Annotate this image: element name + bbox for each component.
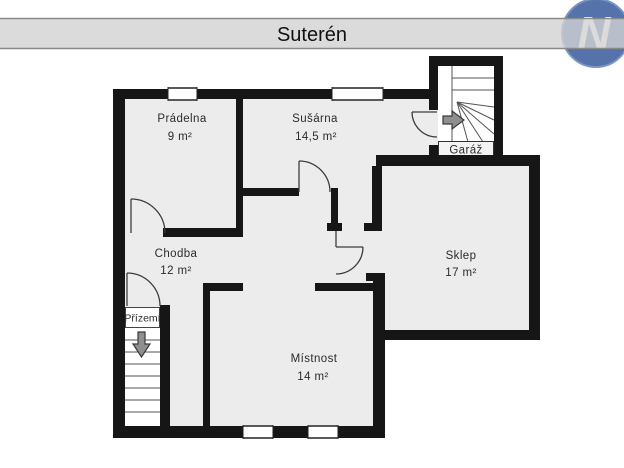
- room-label-garaz: Garáž: [449, 145, 482, 157]
- room-area-sklep: 17 m²: [445, 267, 476, 279]
- staircase-to-ground-floor: [125, 307, 160, 426]
- wall-pradelna-bottom: [163, 228, 243, 237]
- staircase-to-garage: [438, 66, 494, 157]
- window-mistnost-left: [243, 425, 273, 439]
- room-label-prizemi: Přízemí: [124, 313, 160, 325]
- wall-stairbox-right: [494, 56, 503, 166]
- wall-pradelna-susarna-divider: [236, 99, 243, 237]
- wall-sklep-door-jamb-lower: [366, 273, 385, 281]
- floor-sklep: [372, 155, 540, 340]
- window-mistnost-right: [308, 425, 338, 439]
- floor-plan-canvas: N Suterén: [0, 0, 624, 468]
- room-label-mistnost: Místnost: [291, 353, 338, 365]
- room-area-susarna: 14,5 m²: [295, 131, 337, 143]
- room-area-mistnost: 14 m²: [297, 371, 328, 383]
- wall-passage-left-cap: [327, 223, 342, 231]
- wall-left: [113, 89, 125, 438]
- room-label-pradelna: Prádelna: [157, 113, 206, 125]
- garage-stair-well: [438, 66, 494, 142]
- wall-stairbox-left-lower: [429, 145, 438, 166]
- room-label-susarna: Sušárna: [292, 113, 338, 125]
- window-susarna: [332, 87, 383, 101]
- page-title: Suterén: [277, 24, 347, 46]
- wall-top: [113, 89, 438, 99]
- room-area-pradelna: 9 m²: [168, 131, 193, 143]
- room-area-chodba: 12 m²: [160, 265, 191, 277]
- wall-sklep-top: [376, 155, 540, 166]
- wall-sklep-left-cap: [364, 223, 382, 231]
- wall-sklep-right: [529, 155, 540, 340]
- wall-chodba-mistnost-right: [315, 283, 375, 291]
- title-bar: Suterén: [0, 18, 624, 49]
- wall-mistnost-right: [373, 273, 385, 438]
- wall-stairbox-top: [429, 56, 503, 66]
- floor-plan-page: N Suterén: [0, 0, 624, 468]
- room-label-sklep: Sklep: [446, 250, 477, 262]
- room-label-chodba: Chodba: [155, 248, 198, 260]
- window-pradelna: [168, 87, 197, 101]
- wall-sklep-bottom: [373, 330, 540, 340]
- wall-mistnost-left: [203, 283, 210, 438]
- wall-susarna-bottom: [243, 188, 299, 196]
- wall-staircase-right: [160, 305, 170, 432]
- wall-sklep-left-upper: [372, 166, 382, 231]
